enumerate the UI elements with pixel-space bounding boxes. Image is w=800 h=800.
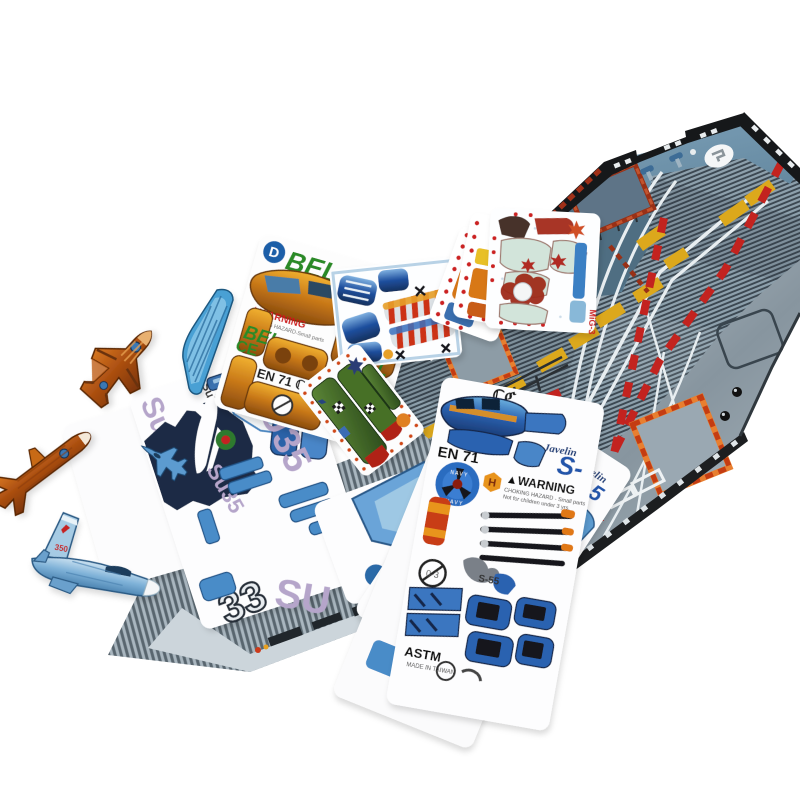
svg-text:S-: S-: [555, 449, 586, 483]
svg-text:MiG-3: MiG-3: [587, 309, 598, 335]
